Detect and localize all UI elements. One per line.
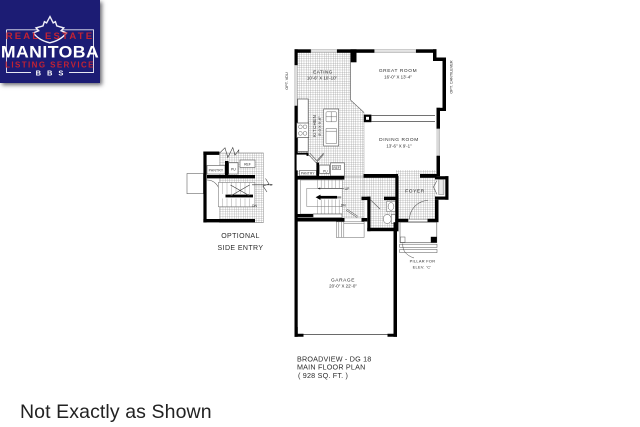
svg-text:13'-6" X 9'-1": 13'-6" X 9'-1" [386,144,412,149]
svg-text:PU: PU [231,168,236,172]
svg-text:PU: PU [323,170,328,174]
svg-text:8'-0 X 9'-6": 8'-0 X 9'-6" [317,116,322,136]
svg-text:FOYER: FOYER [405,189,425,195]
svg-text:OPTIONAL: OPTIONAL [221,233,260,240]
svg-text:REF: REF [244,162,251,166]
svg-text:16'-0" X 13'-4": 16'-0" X 13'-4" [384,75,412,80]
svg-text:ELEV. 'C': ELEV. 'C' [413,264,432,269]
svg-text:PANTRY: PANTRY [301,172,316,176]
svg-text:DN: DN [252,204,257,208]
svg-text:DINING ROOM: DINING ROOM [379,137,419,143]
svg-text:OPT. CANTILEVER: OPT. CANTILEVER [450,60,454,94]
svg-text:PILLAR FOR: PILLAR FOR [410,259,436,264]
svg-text:UP: UP [345,187,350,191]
svg-text:20'-0" X 22'-0": 20'-0" X 22'-0" [329,284,357,289]
svg-text:KITCHEN: KITCHEN [312,115,317,137]
svg-text:10'-6" X 10'-10": 10'-6" X 10'-10" [307,76,338,81]
svg-text:PANTRY: PANTRY [209,169,224,173]
svg-text:REF: REF [333,166,339,170]
svg-text:OPT. VDU: OPT. VDU [285,72,289,90]
svg-text:DN: DN [341,203,346,207]
svg-text:SIDE ENTRY: SIDE ENTRY [218,245,264,252]
svg-text:GREAT ROOM: GREAT ROOM [379,68,417,74]
svg-text:( 928 SQ. FT. ): ( 928 SQ. FT. ) [298,371,348,380]
svg-text:EATING: EATING [313,70,332,75]
